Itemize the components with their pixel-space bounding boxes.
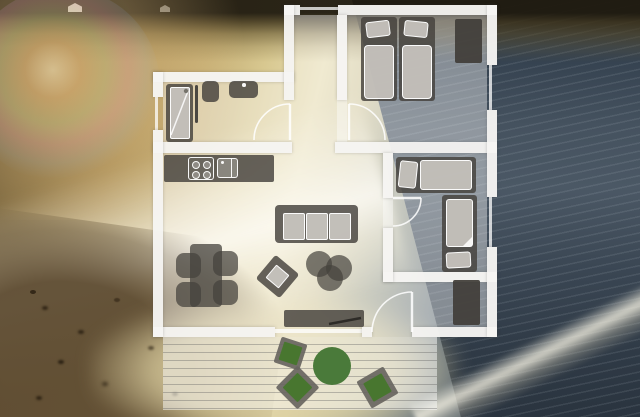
terrace-round-table [313,347,351,385]
wall-bottom-right [412,327,497,337]
seaweed-debris [30,290,36,294]
toilet [202,81,219,102]
terrace-sliding-door [275,329,362,333]
wall-hall-left [284,5,294,100]
terrace-chair-seat [283,373,313,403]
sofa-cushion [283,213,305,240]
wall-right-3 [487,247,497,337]
wall-hall-right [337,15,347,100]
screenshot-root [0,0,640,417]
window-top [300,7,338,10]
wall-right-2 [487,110,497,197]
wall-left-upper [153,72,163,97]
dining-table [190,244,222,307]
wall-left-lower [153,130,163,337]
window-bedroom-second [489,197,492,247]
duvet [420,160,472,190]
pouf [317,265,343,291]
terrace-chair-seat [279,342,303,366]
stove-burner [203,161,211,169]
wardrobe [453,280,480,325]
floor-bathroom-doorway [284,100,294,142]
pillow [365,20,391,39]
stove-burner [192,171,200,179]
shower-tray [170,87,190,139]
duvet [402,45,432,99]
duvet [446,199,473,247]
floor-hall-opening [292,142,335,153]
pillow [403,20,429,38]
wall-mid-right [335,142,497,153]
floor-entrance-opening [372,327,412,337]
duvet [364,45,394,99]
stove [188,157,214,180]
kitchen-sink [217,158,238,178]
pillow [446,251,472,268]
terrace-chair-seat [363,373,392,402]
window-bedroom-twin [489,65,492,110]
wall-bedroom2-left-lower [383,228,393,282]
floor-bedroom2-doorway [383,198,393,228]
coffee-table-top [265,264,289,288]
wall-bottom-left [153,327,275,337]
sink-tap [221,161,224,164]
tv-sideboard [284,310,364,327]
floor-bedroom-doorway [337,100,347,142]
stove-burner [192,161,200,169]
wall-right-1 [487,5,497,65]
pillow [398,160,419,189]
wall-bedroom2-left-upper [383,153,393,198]
washbasin-tap [242,83,246,87]
sink-divider [231,159,233,177]
window-bathroom [155,97,158,130]
wall-top [338,5,497,15]
wardrobe [455,19,482,63]
wall-bottom-mid [362,327,372,337]
sofa-cushion [329,213,351,240]
wall-mid-left [153,142,292,153]
bathroom-heater [195,85,199,123]
wall-bathroom-top [153,72,294,82]
sofa-cushion [306,213,328,240]
stove-burner [203,171,211,179]
